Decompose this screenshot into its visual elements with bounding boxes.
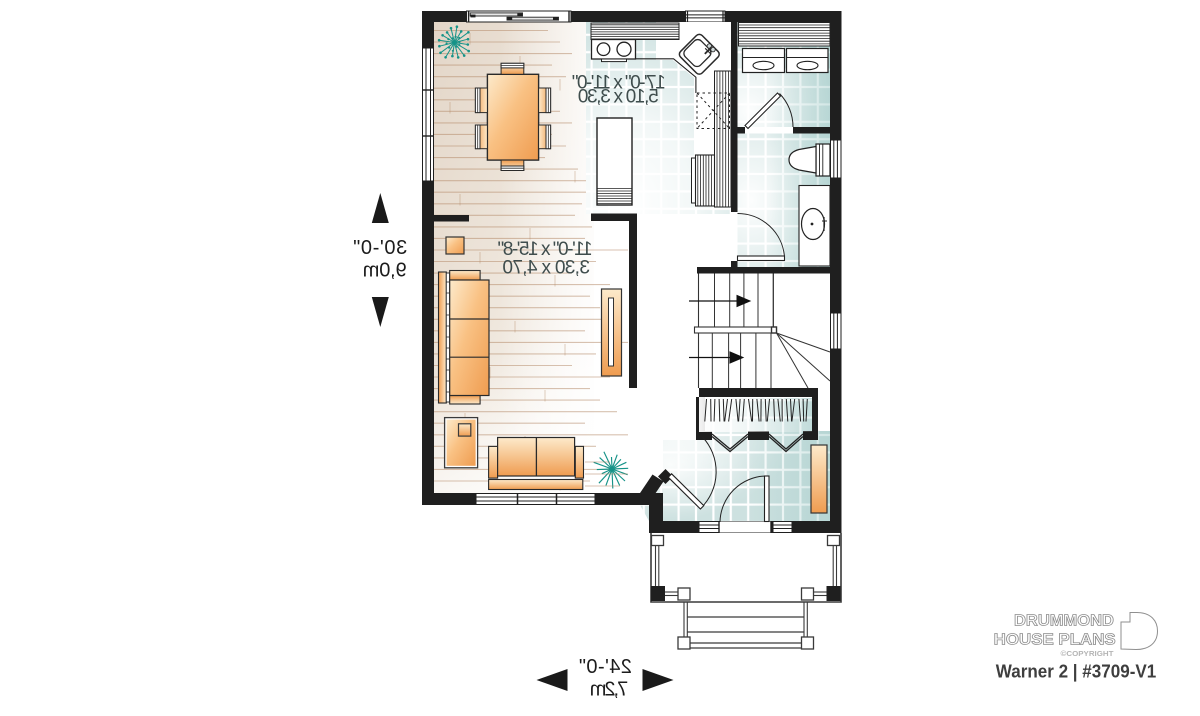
svg-text:DRUMMOND: DRUMMOND (1014, 613, 1114, 630)
svg-text:9,0m: 9,0m (363, 259, 407, 281)
svg-text:30'-0": 30'-0" (353, 237, 407, 259)
svg-text:7,2m: 7,2m (590, 678, 629, 700)
svg-text:Warner 2 | #3709-V1: Warner 2 | #3709-V1 (996, 662, 1157, 682)
svg-text:3,30 x 4,70: 3,30 x 4,70 (502, 258, 590, 279)
svg-text:©COPYRIGHT: ©COPYRIGHT (1061, 650, 1115, 658)
svg-text:5,10 x 3,30: 5,10 x 3,30 (578, 87, 659, 108)
svg-text:24'-0": 24'-0" (579, 656, 632, 678)
svg-text:HOUSE PLANS: HOUSE PLANS (994, 632, 1116, 649)
